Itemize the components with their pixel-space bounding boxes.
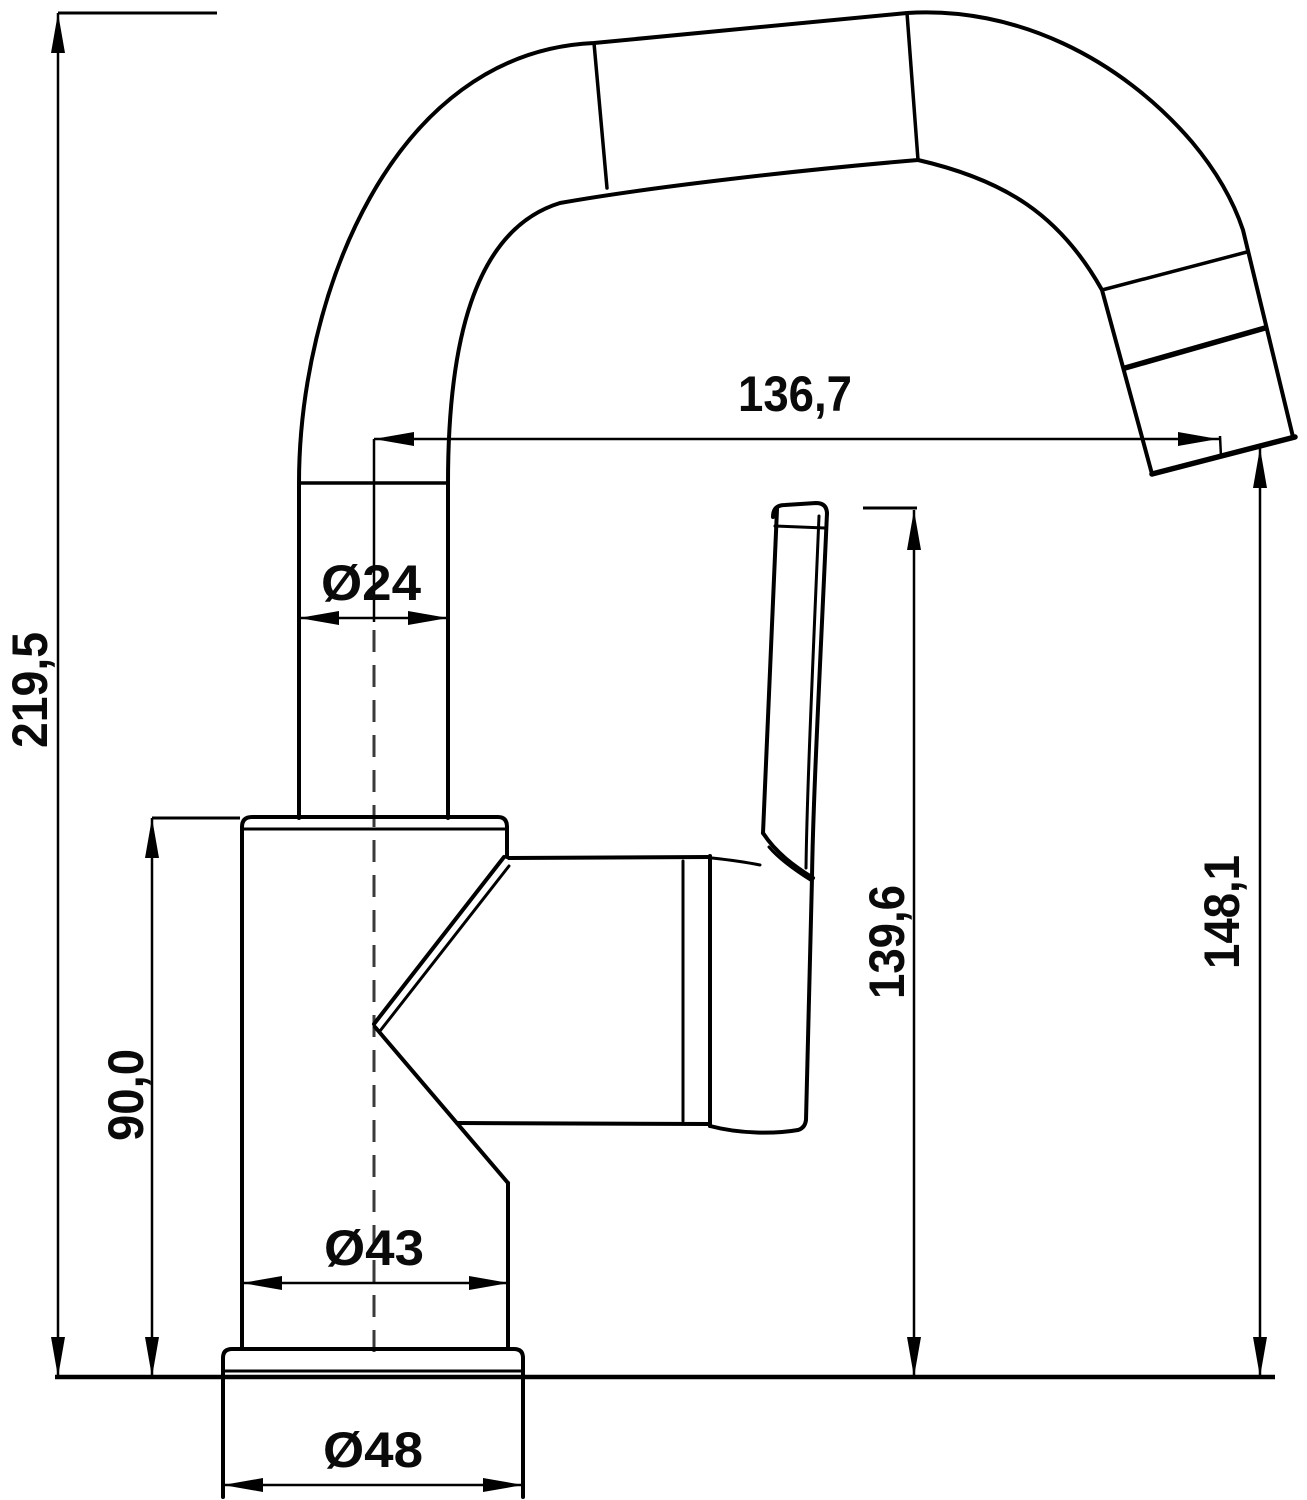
handle-bell-bottom-edge xyxy=(710,1126,798,1133)
arrow-down-icon xyxy=(145,1337,159,1377)
drawing-page: 219,5 90,0 136,7 Ø24 139,6 148,1 xyxy=(0,0,1307,1500)
dim-body-height: 90,0 xyxy=(98,818,240,1377)
arrow-down-icon xyxy=(51,1337,65,1377)
cartridge-housing-top-edge xyxy=(509,857,710,858)
dim-base-diameter: Ø48 xyxy=(223,1422,523,1492)
aerator-ring-line xyxy=(1125,328,1265,368)
body-chamfer-edge-outer xyxy=(374,857,504,1024)
dim-label-overall-height: 219,5 xyxy=(2,632,58,748)
arrow-right-icon xyxy=(1178,432,1218,446)
arrow-up-icon xyxy=(1253,448,1267,488)
handle-lever-cap-seam xyxy=(775,526,825,528)
spout-joint-line-1 xyxy=(594,43,607,188)
spout-joint-line-2 xyxy=(907,13,918,160)
arrow-up-icon xyxy=(51,13,65,53)
dim-label-outlet-height: 148,1 xyxy=(1194,855,1250,969)
cartridge-housing-bottom-edge xyxy=(457,1123,710,1124)
dim-spout-reach: 136,7 xyxy=(374,366,1221,622)
arrow-up-icon xyxy=(907,510,921,550)
arrow-left-icon xyxy=(374,432,414,446)
handle-lever-right-edge xyxy=(798,513,827,1130)
arrow-right-icon xyxy=(469,1276,509,1290)
dim-handle-height: 139,6 xyxy=(859,508,921,1377)
dim-label-handle-height: 139,6 xyxy=(859,885,915,999)
dim-label-body-height: 90,0 xyxy=(98,1049,154,1141)
dim-label-spout-reach: 136,7 xyxy=(738,366,852,422)
handle-lever-left-edge xyxy=(763,509,777,833)
handle-bell-top-edge xyxy=(712,858,760,865)
dim-label-base-diameter: Ø48 xyxy=(323,1422,423,1478)
dim-label-pipe-diameter: Ø24 xyxy=(321,555,421,611)
base-flange-top xyxy=(223,1349,523,1358)
arrow-up-icon xyxy=(145,818,159,858)
spout-outlet-face xyxy=(1152,437,1295,474)
outlet-joint-line-1 xyxy=(1102,252,1247,290)
spout-inner-edge xyxy=(448,160,1152,818)
body-chamfer-edge-inner xyxy=(380,866,509,1031)
arrow-left-icon xyxy=(242,1276,282,1290)
faucet-technical-drawing: 219,5 90,0 136,7 Ø24 139,6 148,1 xyxy=(0,0,1307,1500)
arrow-right-icon xyxy=(408,611,448,625)
dim-overall-height: 219,5 xyxy=(2,13,217,1377)
dim-extension-line-right xyxy=(1220,436,1221,457)
arrow-left-icon xyxy=(299,611,339,625)
dim-outlet-height: 148,1 xyxy=(1194,448,1267,1377)
arrow-down-icon xyxy=(1253,1337,1267,1377)
body-notch-lower-edge xyxy=(375,1027,508,1183)
dim-label-body-diameter: Ø43 xyxy=(324,1220,424,1276)
arrow-right-icon xyxy=(483,1478,523,1492)
arrow-left-icon xyxy=(223,1478,263,1492)
arrow-down-icon xyxy=(907,1337,921,1377)
